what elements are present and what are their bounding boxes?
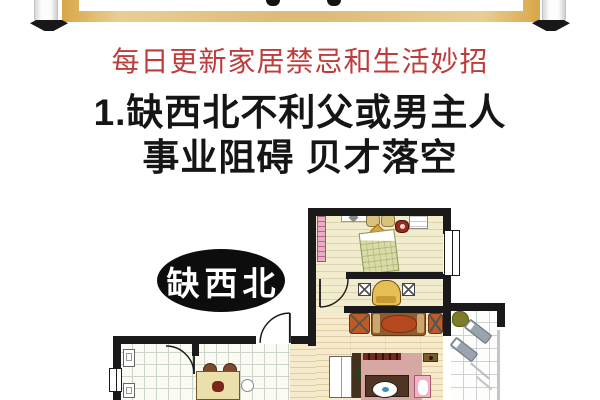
wall (344, 306, 443, 313)
window (109, 368, 122, 392)
console-box (423, 353, 438, 362)
wall (291, 336, 308, 344)
sofa-arm (417, 314, 424, 333)
window-line (452, 231, 453, 275)
bed (359, 229, 400, 275)
armchair-left (349, 313, 370, 334)
article-heading: 1.缺西北不利父或男主人 事业阻碍 贝才落空 (0, 90, 600, 180)
wall (308, 208, 316, 346)
console-dot (429, 356, 433, 360)
wall (113, 336, 121, 372)
window (444, 230, 460, 276)
appliance-detail (126, 387, 132, 394)
heading-line-1: 1.缺西北不利父或男主人 (0, 90, 600, 135)
kitchen-appliance (123, 349, 135, 367)
dressing-armchair (372, 280, 401, 306)
stool (241, 379, 254, 392)
lounge-pillow (466, 321, 474, 330)
washbasin (372, 381, 398, 398)
entry-hall-floor (290, 344, 316, 400)
wall (497, 303, 505, 327)
sofa (371, 311, 426, 336)
bedroom-chair (395, 220, 409, 233)
basin-drain (382, 387, 389, 392)
wall (308, 208, 451, 216)
sofa-cushion (381, 315, 417, 333)
wardrobe (317, 216, 326, 262)
missing-northwest-label: 缺西北 (157, 249, 285, 312)
infographic-page: 每日更新家居禁忌和生活妙招 1.缺西北不利父或男主人 事业阻碍 贝才落空 (0, 0, 600, 400)
armchair-right (428, 313, 443, 334)
scroll-roller-left (34, 0, 58, 22)
wall (443, 274, 451, 336)
armchair-seat (376, 296, 396, 303)
heading-line-2: 事业阻碍 贝才落空 (0, 135, 600, 180)
chair-cushion (400, 224, 405, 229)
side-table (358, 283, 371, 296)
kitchen-appliance (123, 383, 135, 398)
wall (113, 336, 256, 344)
subtitle-text: 每日更新家居禁忌和生活妙招 (0, 40, 600, 80)
table-centerpiece (212, 381, 224, 392)
bed-sheet (360, 230, 395, 245)
entry-door-arc (258, 311, 292, 345)
door-leaf-panel (329, 356, 352, 398)
dining-table (196, 371, 240, 400)
lounge-pillow (452, 339, 460, 348)
bedroom-door-arc (318, 277, 350, 309)
toilet-bowl (418, 380, 428, 395)
scroll-finial-right (532, 20, 570, 31)
scroll-roller-right (542, 0, 566, 22)
scroll-inner-panel (79, 0, 523, 11)
kitchen-door-arc (164, 344, 196, 376)
toilet (414, 375, 431, 398)
panel-line (341, 357, 342, 397)
sofa-arm (373, 314, 380, 333)
appliance-detail (126, 353, 132, 361)
balcony-railing (497, 330, 500, 400)
scroll-finial-left (30, 20, 68, 31)
window-line (116, 369, 117, 391)
side-table (402, 283, 415, 296)
wall (346, 272, 443, 279)
shelf-strip (363, 353, 401, 360)
